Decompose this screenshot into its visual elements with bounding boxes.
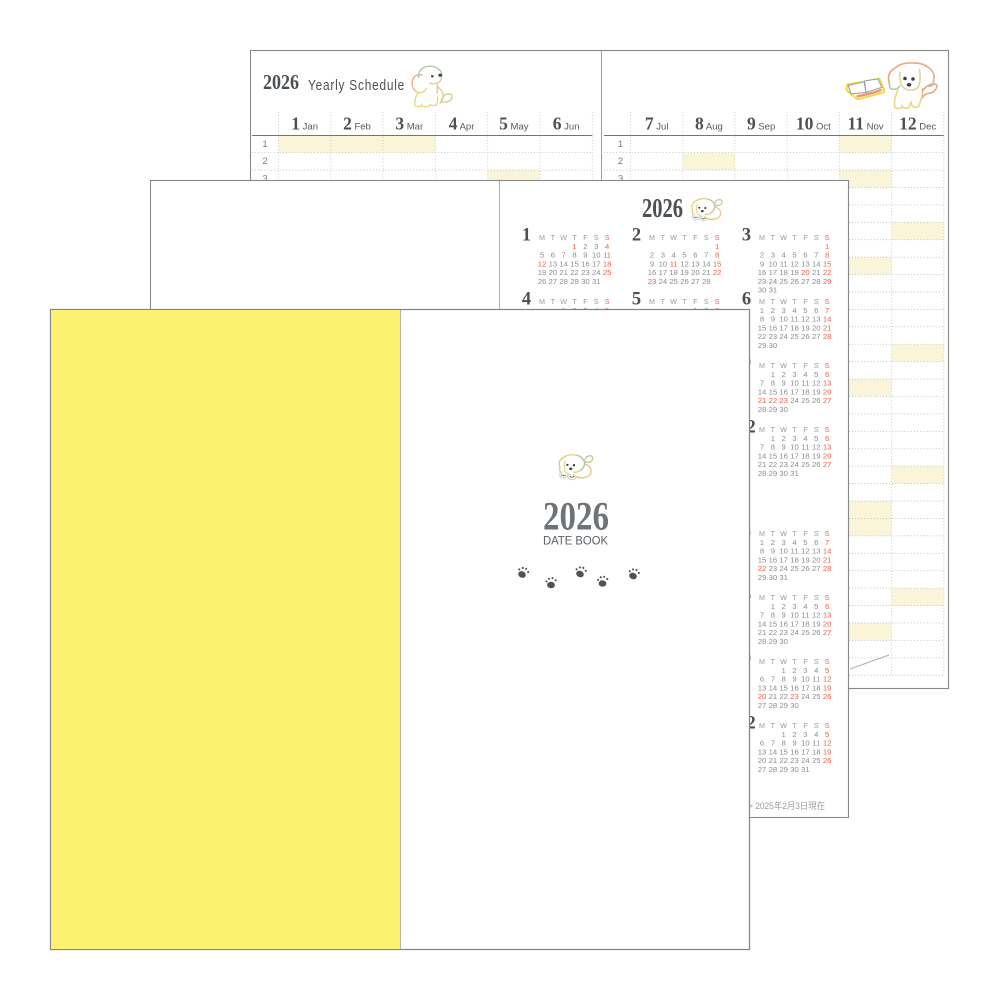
svg-text:22232425262728: 22232425262728 — [758, 564, 832, 573]
svg-text:21222324252627: 21222324252627 — [758, 460, 832, 469]
svg-text:16171819202122: 16171819202122 — [648, 268, 722, 277]
svg-text:15161718192021: 15161718192021 — [758, 323, 832, 332]
svg-text:16171819202122: 16171819202122 — [758, 268, 832, 277]
svg-text:1: 1 — [618, 139, 623, 150]
svg-text:14151617181920: 14151617181920 — [758, 387, 832, 396]
svg-text:5: 5 — [632, 290, 641, 310]
svg-text:13141516171819: 13141516171819 — [758, 747, 832, 756]
svg-text:2026: 2026 — [642, 193, 683, 223]
svg-text:1: 1 — [522, 226, 531, 246]
svg-text:4: 4 — [522, 290, 531, 310]
svg-text:282930: 282930 — [758, 405, 788, 414]
svg-text:20212223242526: 20212223242526 — [758, 692, 832, 701]
svg-text:22232425262728: 22232425262728 — [758, 332, 832, 341]
svg-text:14151617181920: 14151617181920 — [758, 619, 832, 628]
svg-text:2: 2 — [262, 156, 267, 167]
svg-text:282930: 282930 — [758, 637, 788, 646]
svg-text:Yearly Schedule: Yearly Schedule — [308, 77, 405, 94]
svg-text:2026: 2026 — [543, 494, 609, 539]
svg-text:13141516171819: 13141516171819 — [758, 683, 832, 692]
svg-text:12131415161718: 12131415161718 — [538, 259, 612, 268]
svg-text:21222324252627: 21222324252627 — [758, 628, 832, 637]
svg-text:2728293031: 2728293031 — [758, 765, 810, 774]
svg-text:2: 2 — [618, 156, 623, 167]
svg-text:DATE BOOK: DATE BOOK — [543, 536, 608, 548]
svg-text:19202122232425: 19202122232425 — [538, 268, 612, 277]
svg-text:14151617181920: 14151617181920 — [758, 451, 832, 460]
svg-text:15161718192021: 15161718192021 — [758, 555, 832, 564]
svg-text:1: 1 — [715, 242, 719, 251]
svg-text:3: 3 — [742, 226, 751, 246]
svg-text:567891011: 567891011 — [540, 251, 611, 260]
svg-text:1: 1 — [262, 139, 267, 150]
svg-text:2: 2 — [632, 226, 641, 246]
svg-text:20212223242526: 20212223242526 — [758, 756, 832, 765]
svg-text:21222324252627: 21222324252627 — [758, 396, 832, 405]
svg-text:293031: 293031 — [758, 573, 788, 582]
svg-text:1: 1 — [825, 242, 829, 251]
svg-text:6: 6 — [742, 290, 751, 310]
svg-text:2026: 2026 — [263, 70, 299, 94]
svg-text:> 2025年2月3日現在: > 2025年2月3日現在 — [748, 800, 825, 811]
svg-text:23242526272829: 23242526272829 — [758, 277, 832, 286]
